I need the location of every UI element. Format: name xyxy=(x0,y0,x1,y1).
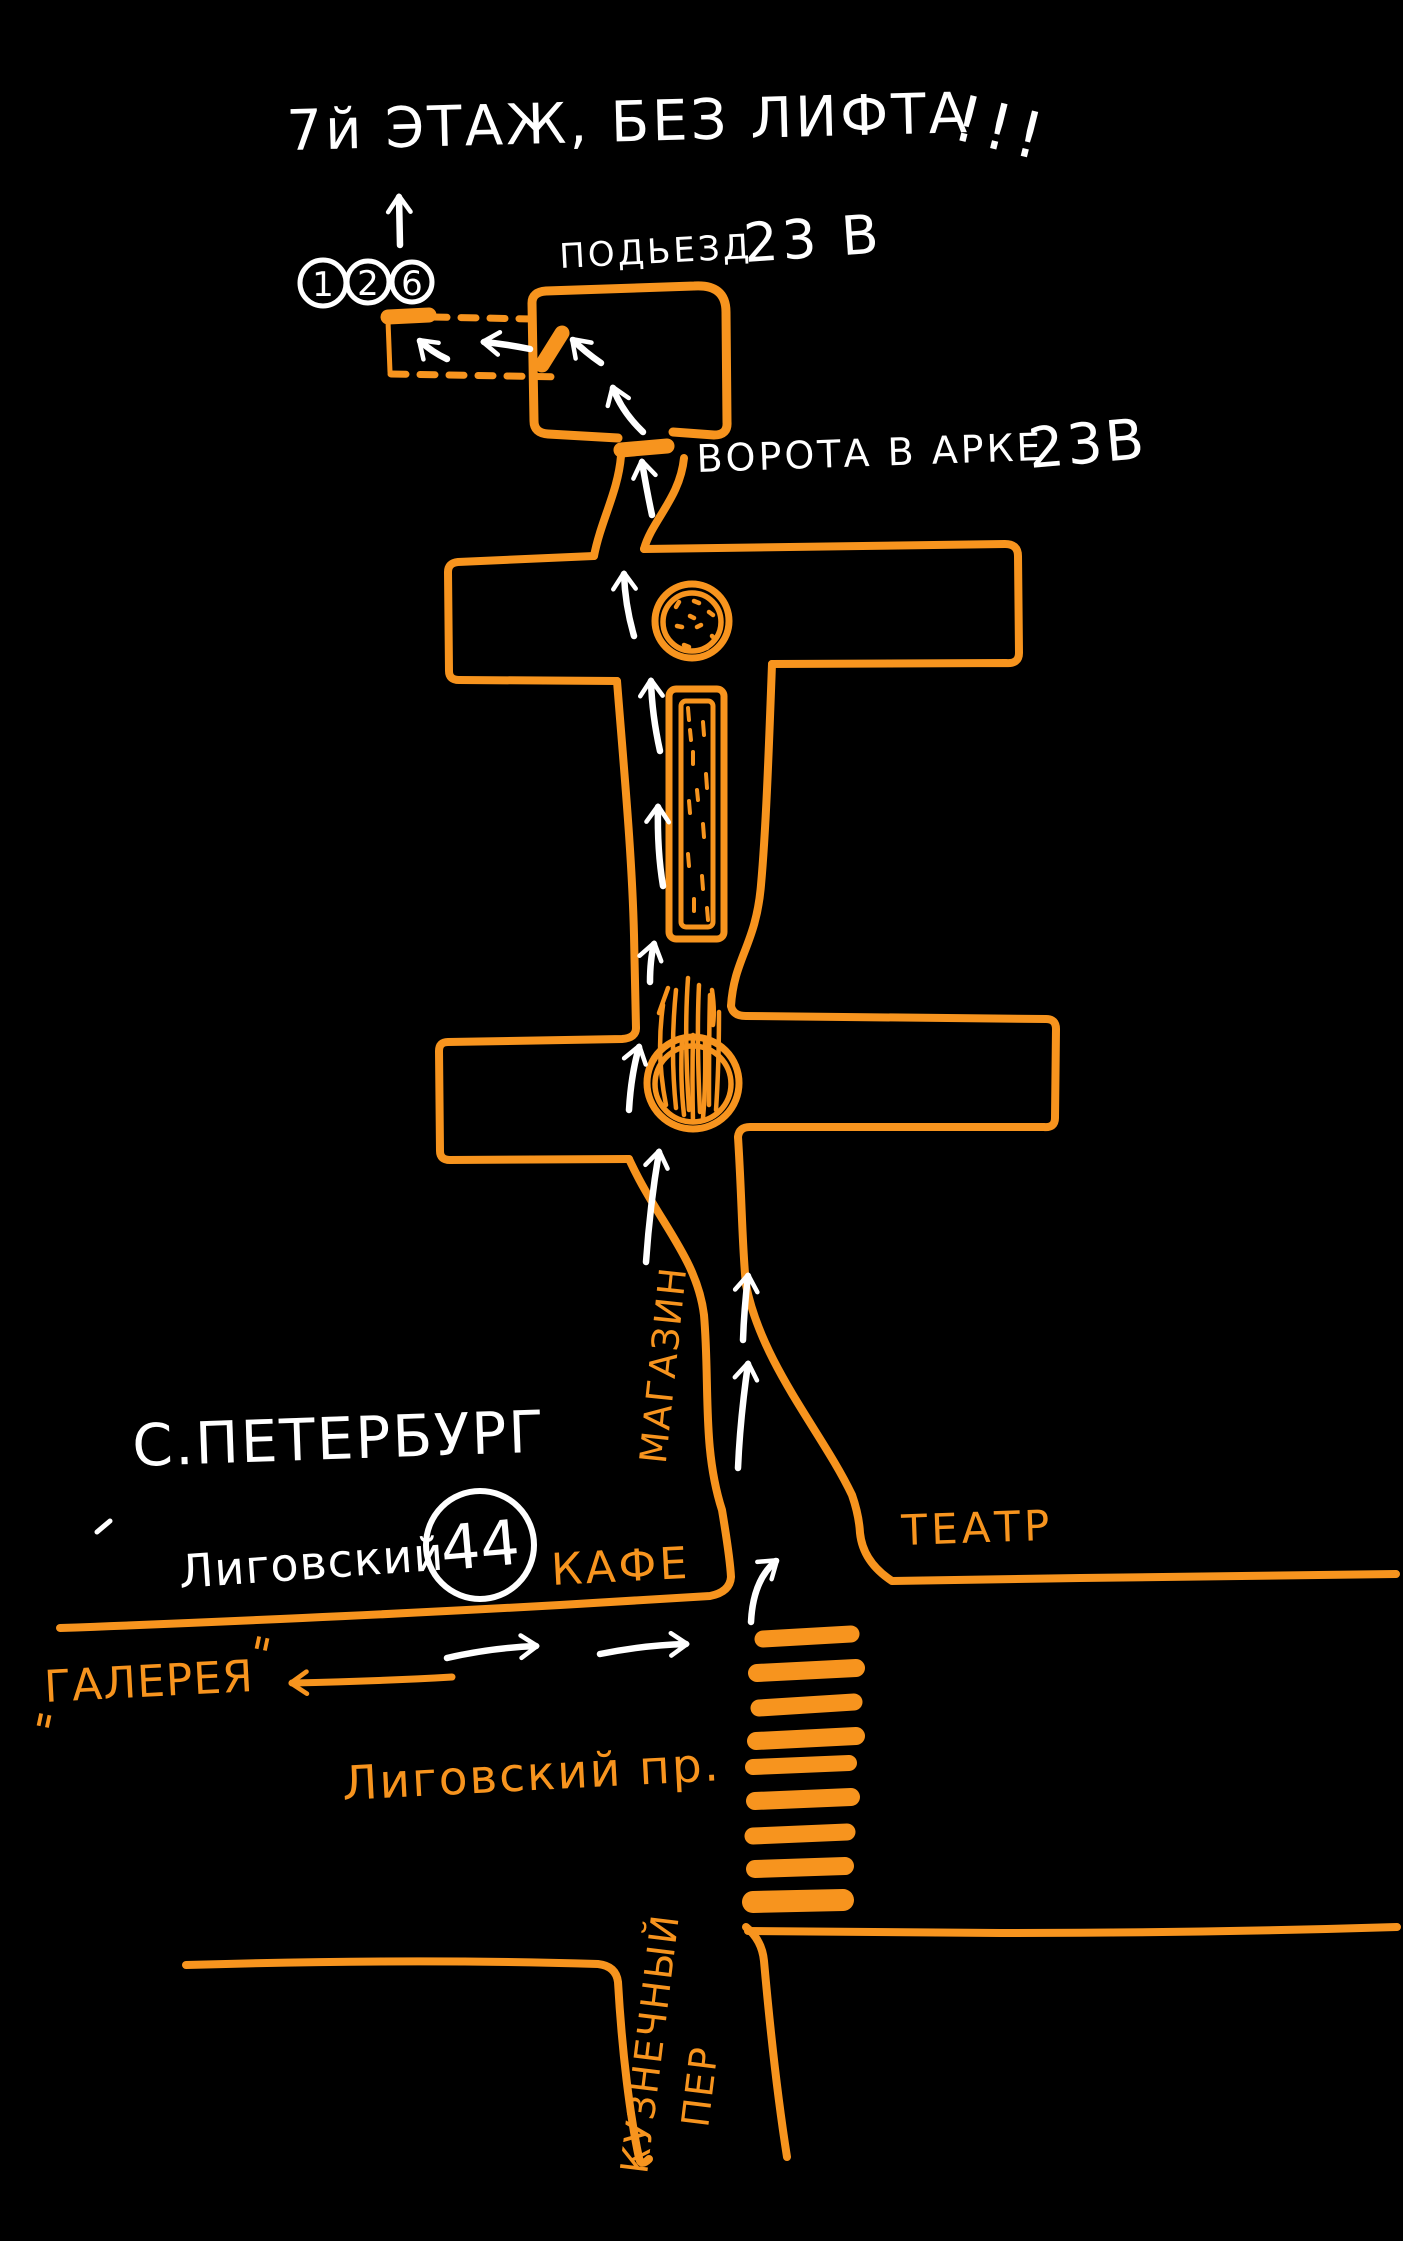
arrow-to-floor-note xyxy=(399,197,400,245)
house-number-text: 44 xyxy=(438,1506,523,1586)
hand-drawn-route-map: 1 2 6 44 7й ЭТАЖ, БЕЗ ЛИФТА !!! ПОДЬЕЗД … xyxy=(0,0,1403,2241)
cafe-label: КАФЕ xyxy=(550,1538,691,1596)
gate-number: 23В xyxy=(1026,407,1150,482)
code-digit-1: 1 xyxy=(312,265,334,305)
code-digit-3: 6 xyxy=(401,264,423,304)
corridor-left-edge xyxy=(388,321,390,372)
city-label: С.ПЕТЕРБУРГ xyxy=(131,1398,547,1480)
theater-label: ТЕАТР xyxy=(900,1501,1055,1555)
zebra-crossing xyxy=(753,1634,856,1902)
entrance-code-badges: 1 2 6 xyxy=(300,260,432,306)
code-digit-2: 2 xyxy=(357,264,379,304)
map-canvas: 1 2 6 44 7й ЭТАЖ, БЕЗ ЛИФТА !!! ПОДЬЕЗД … xyxy=(0,0,1403,2241)
arch-gate-mark xyxy=(621,446,667,450)
entrance-door-mark xyxy=(388,315,429,317)
entrance-number: 23 В xyxy=(742,202,885,275)
